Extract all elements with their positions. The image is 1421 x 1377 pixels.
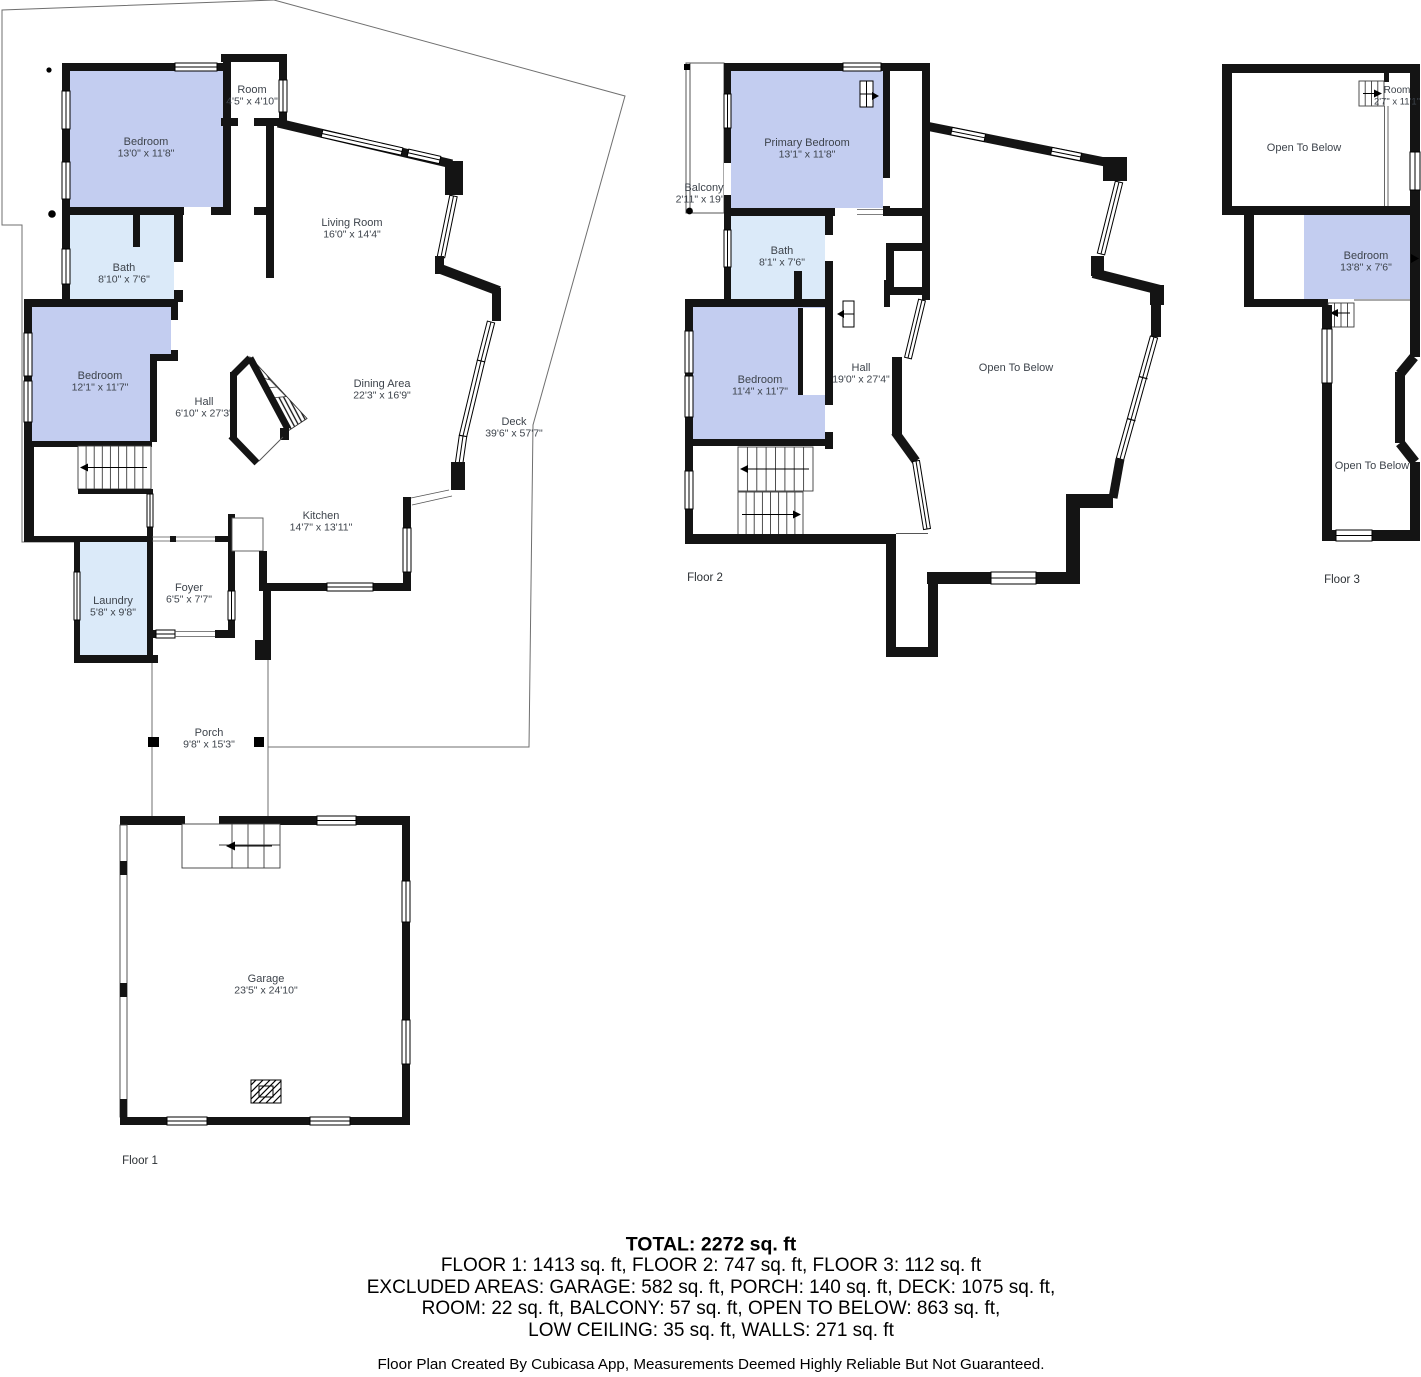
svg-text:13'0" x 11'8": 13'0" x 11'8" xyxy=(118,148,175,160)
svg-text:Bath: Bath xyxy=(771,245,794,257)
svg-text:6'5" x 7'7": 6'5" x 7'7" xyxy=(166,594,212,606)
svg-text:Bedroom: Bedroom xyxy=(124,136,169,148)
svg-text:22'3" x 16'9": 22'3" x 16'9" xyxy=(353,390,411,402)
svg-text:19'0" x 27'4": 19'0" x 27'4" xyxy=(832,374,890,386)
svg-text:11'4" x 11'7": 11'4" x 11'7" xyxy=(732,386,788,398)
svg-text:Open To Below: Open To Below xyxy=(979,362,1053,374)
svg-text:Porch: Porch xyxy=(195,727,224,739)
svg-text:13'8" x 7'6": 13'8" x 7'6" xyxy=(1340,262,1392,274)
svg-text:ROOM: 22 sq. ft, BALCONY: 57 s: ROOM: 22 sq. ft, BALCONY: 57 sq. ft, OPE… xyxy=(422,1298,1001,1319)
svg-text:4'5" x 4'10": 4'5" x 4'10" xyxy=(226,96,278,108)
svg-text:8'1" x 7'6": 8'1" x 7'6" xyxy=(759,257,805,269)
svg-text:Primary Bedroom: Primary Bedroom xyxy=(764,137,850,149)
svg-text:Hall: Hall xyxy=(195,396,214,408)
svg-text:8'10" x 7'6": 8'10" x 7'6" xyxy=(98,274,150,286)
svg-text:Balcony: Balcony xyxy=(684,182,724,194)
svg-text:EXCLUDED AREAS: GARAGE: 582 sq: EXCLUDED AREAS: GARAGE: 582 sq. ft, PORC… xyxy=(367,1277,1056,1298)
svg-text:Room: Room xyxy=(1384,85,1411,96)
svg-text:Floor 2: Floor 2 xyxy=(687,572,723,584)
svg-text:Open To Below: Open To Below xyxy=(1335,460,1409,472)
svg-text:9'8" x 15'3": 9'8" x 15'3" xyxy=(183,739,235,751)
svg-text:Kitchen: Kitchen xyxy=(303,510,340,522)
svg-text:FLOOR 1: 1413 sq. ft, FLOOR 2:: FLOOR 1: 1413 sq. ft, FLOOR 2: 747 sq. f… xyxy=(441,1255,982,1276)
svg-text:12'1" x 11'7": 12'1" x 11'7" xyxy=(72,382,129,394)
svg-text:TOTAL: 2272 sq. ft: TOTAL: 2272 sq. ft xyxy=(626,1234,797,1256)
svg-text:13'1" x 11'8": 13'1" x 11'8" xyxy=(779,149,836,161)
svg-text:Living Room: Living Room xyxy=(321,217,382,229)
svg-text:LOW CEILING: 35 sq. ft, WALLS:: LOW CEILING: 35 sq. ft, WALLS: 271 sq. f… xyxy=(528,1320,894,1341)
svg-text:14'7" x 13'11": 14'7" x 13'11" xyxy=(290,522,353,534)
svg-text:39'6" x 57'7": 39'6" x 57'7" xyxy=(485,428,543,440)
svg-text:16'0" x 14'4": 16'0" x 14'4" xyxy=(323,229,381,241)
svg-text:6'10" x 27'3": 6'10" x 27'3" xyxy=(175,408,233,420)
svg-text:Garage: Garage xyxy=(248,973,285,985)
svg-text:Bedroom: Bedroom xyxy=(78,370,123,382)
svg-text:Dining Area: Dining Area xyxy=(354,378,412,390)
svg-text:Hall: Hall xyxy=(852,362,871,374)
svg-text:Deck: Deck xyxy=(501,416,527,428)
svg-text:Bath: Bath xyxy=(113,262,136,274)
svg-text:2'7" x 11'1": 2'7" x 11'1" xyxy=(1374,97,1420,108)
svg-text:Laundry: Laundry xyxy=(93,595,133,607)
svg-text:5'8" x 9'8": 5'8" x 9'8" xyxy=(90,607,136,619)
svg-text:Bedroom: Bedroom xyxy=(738,374,783,386)
svg-text:Floor 1: Floor 1 xyxy=(122,1155,158,1167)
svg-text:Bedroom: Bedroom xyxy=(1344,250,1389,262)
svg-text:Room: Room xyxy=(237,84,266,96)
svg-text:Open To Below: Open To Below xyxy=(1267,142,1341,154)
svg-text:Floor Plan Created By Cubicasa: Floor Plan Created By Cubicasa App, Meas… xyxy=(378,1356,1045,1372)
svg-text:23'5" x 24'10": 23'5" x 24'10" xyxy=(234,985,298,997)
svg-text:Foyer: Foyer xyxy=(175,582,203,594)
svg-text:Floor 3: Floor 3 xyxy=(1324,574,1360,586)
